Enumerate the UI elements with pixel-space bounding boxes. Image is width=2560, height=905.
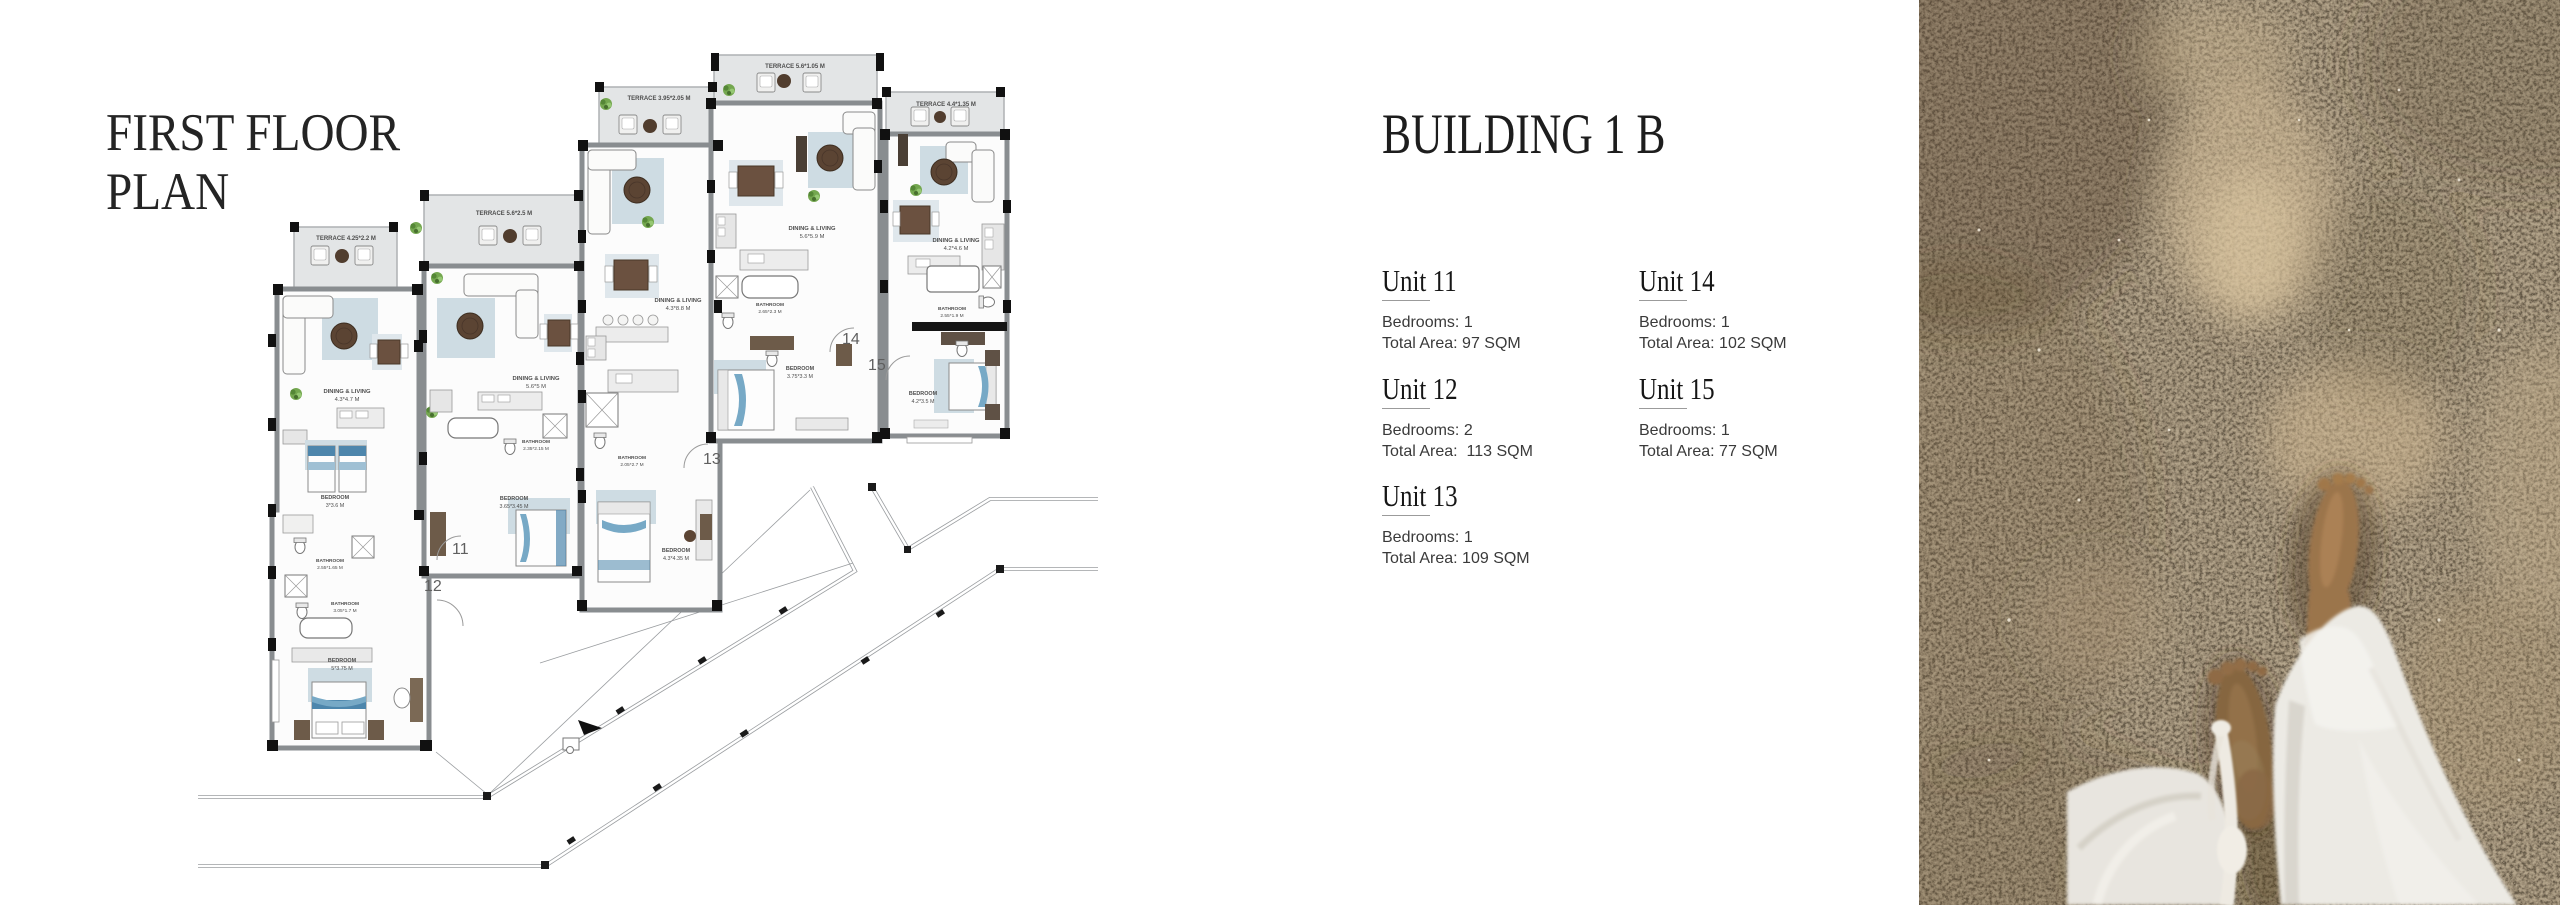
svg-text:13: 13 (703, 451, 721, 468)
svg-text:2.55*1.65 M: 2.55*1.65 M (317, 565, 343, 571)
svg-text:15: 15 (868, 357, 886, 374)
svg-text:11: 11 (452, 541, 469, 558)
svg-text:3.75*3.3 M: 3.75*3.3 M (787, 374, 814, 380)
svg-text:5.6*5 M: 5.6*5 M (526, 384, 546, 390)
svg-text:BEDROOM: BEDROOM (909, 391, 938, 397)
svg-text:4.3*4.35 M: 4.3*4.35 M (663, 556, 690, 562)
svg-text:BATHROOM: BATHROOM (522, 439, 550, 445)
svg-text:DINING & LIVING: DINING & LIVING (654, 298, 702, 304)
svg-text:14: 14 (842, 331, 860, 348)
svg-text:2.65*2.3 M: 2.65*2.3 M (758, 309, 781, 315)
svg-text:BATHROOM: BATHROOM (618, 455, 646, 461)
svg-text:4.2*4.6 M: 4.2*4.6 M (944, 246, 969, 252)
svg-text:BEDROOM: BEDROOM (786, 366, 815, 372)
svg-text:5.6*5.9 M: 5.6*5.9 M (800, 234, 825, 240)
svg-text:BATHROOM: BATHROOM (756, 302, 784, 308)
svg-text:DINING & LIVING: DINING & LIVING (932, 238, 980, 244)
svg-text:4.3*8.8 M: 4.3*8.8 M (666, 306, 691, 312)
svg-text:TERRACE 3.95*2.05 M: TERRACE 3.95*2.05 M (627, 96, 690, 102)
svg-text:5*3.75 M: 5*3.75 M (331, 666, 353, 672)
svg-text:4.3*4.7 M: 4.3*4.7 M (335, 397, 360, 403)
svg-text:DINING & LIVING: DINING & LIVING (512, 376, 560, 382)
svg-text:BEDROOM: BEDROOM (321, 495, 350, 501)
svg-text:4.2*3.5 M: 4.2*3.5 M (911, 399, 935, 405)
svg-text:DINING & LIVING: DINING & LIVING (788, 226, 836, 232)
svg-text:TERRACE 5.6*1.05 M: TERRACE 5.6*1.05 M (765, 64, 825, 70)
svg-text:BATHROOM: BATHROOM (316, 558, 344, 564)
svg-text:BEDROOM: BEDROOM (662, 548, 691, 554)
svg-text:3.65*3.45 M: 3.65*3.45 M (499, 504, 529, 510)
svg-text:3.05*1.7 M: 3.05*1.7 M (333, 608, 356, 614)
svg-text:2.35*2.15 M: 2.35*2.15 M (523, 446, 549, 452)
svg-text:BEDROOM: BEDROOM (328, 658, 357, 664)
svg-text:2.55*1.9 M: 2.55*1.9 M (940, 313, 963, 319)
svg-text:BATHROOM: BATHROOM (331, 601, 359, 607)
svg-text:3*3.6 M: 3*3.6 M (326, 503, 345, 509)
svg-text:12: 12 (424, 578, 442, 595)
svg-text:DINING & LIVING: DINING & LIVING (323, 389, 371, 395)
svg-text:2.05*2.7 M: 2.05*2.7 M (620, 462, 643, 468)
svg-text:TERRACE 5.6*2.5 M: TERRACE 5.6*2.5 M (476, 211, 532, 217)
svg-text:TERRACE 4.25*2.2 M: TERRACE 4.25*2.2 M (316, 236, 376, 242)
svg-text:BATHROOM: BATHROOM (938, 306, 966, 312)
svg-text:BEDROOM: BEDROOM (500, 496, 529, 502)
